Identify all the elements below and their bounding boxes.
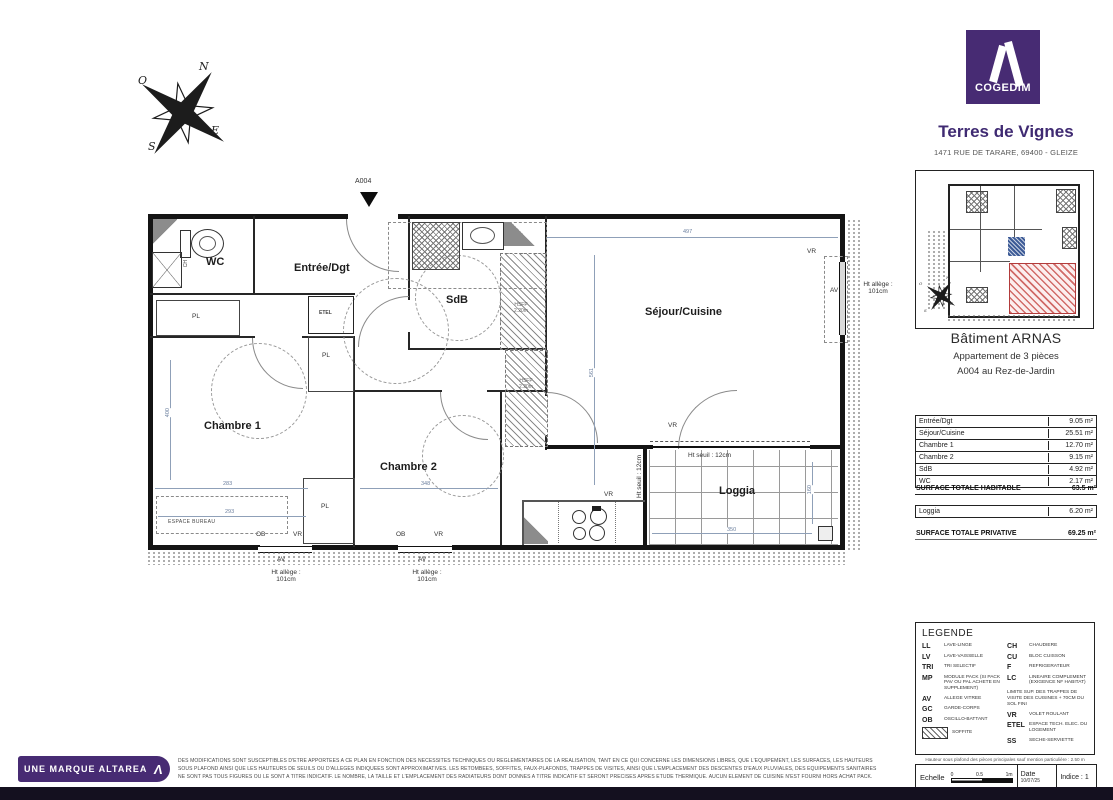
legend-desc: TRI SELECTIF	[944, 664, 976, 670]
wall-ch2-top-a	[355, 390, 442, 392]
dim-c1v: 400	[164, 408, 172, 417]
dim-loggia: 350	[726, 527, 737, 533]
loggia-floor	[649, 450, 838, 545]
win1-ht-1: Ht allège :	[271, 569, 300, 576]
room-chambre1: Chambre 1	[204, 420, 261, 432]
winR-vr: VR	[807, 248, 816, 255]
row-value: 9.15 m²	[1048, 453, 1093, 462]
room-entree: Entrée/Dgt	[294, 262, 350, 274]
row-value: 25.51 m²	[1048, 429, 1093, 438]
cogedim-logo: COGEDIM	[966, 30, 1040, 104]
win1-ht-allege: Ht allège : 101cm	[255, 569, 317, 583]
wall-wc-bottom	[150, 293, 355, 295]
room-sdb: SdB	[446, 294, 468, 306]
date-label: Date	[1021, 771, 1054, 778]
win2-ht-2: 101cm	[417, 576, 437, 583]
legend-item: VRVOLET ROULANT	[1007, 712, 1088, 719]
legend-item: SSSECHE-SERVIETTE	[1007, 738, 1088, 745]
row-label: Chambre 1	[919, 442, 954, 449]
key-highlight-apartment	[1009, 263, 1076, 314]
legend-item: FREFRIGERATEUR	[1007, 664, 1088, 671]
legend-desc: REFRIGERATEUR	[1029, 664, 1070, 670]
legend-item: AVALLEGE VITREE	[922, 696, 1001, 703]
scale-label: Echelle	[920, 773, 945, 782]
wall-kitchen-loggia	[643, 448, 647, 548]
row-label: SdB	[919, 466, 932, 473]
legend-right-column: CHCHAUDIERE CUBLOC CUISSON FREFRIGERATEU…	[1007, 643, 1088, 748]
program-address: 1471 RUE DE TARARE, 69400 - GLEIZE	[902, 148, 1110, 157]
legend-item: LCLINEAIRE COMPLEMENT (EXIGENCE NF HABIT…	[1007, 675, 1088, 687]
site-key-plan: N O E S	[915, 170, 1094, 329]
legend-box: LEGENDE LLLAVE-LINGE LVLAVE-VAISSELLE TR…	[915, 622, 1095, 755]
win1-ht-2: 101cm	[276, 576, 296, 583]
disclaimer-line-3: NE SONT PAS TOUS FIGURES OU LE SONT A TI…	[178, 774, 872, 780]
table-row: Loggia 6.20 m²	[916, 506, 1096, 517]
winR-ht-1: Ht allège :	[863, 281, 892, 288]
dimline-loggia	[652, 533, 812, 534]
legend-abbr: F	[1007, 664, 1025, 671]
boiler-icon	[152, 252, 182, 288]
legend-item: MPMODULE PACK (SI PACK PAV OU PAL ACHETE…	[922, 675, 1001, 693]
table-row: Chambre 29.15 m²	[916, 452, 1096, 464]
key-ground-bottom	[948, 315, 1076, 323]
hob-control-icon	[592, 506, 601, 511]
legend-item: TRITRI SELECTIF	[922, 664, 1001, 671]
indice-value: Indice : 1	[1060, 774, 1088, 781]
scale-seg-1	[951, 778, 983, 783]
soffite-hatch-2	[505, 350, 548, 447]
table-row: SdB4.92 m²	[916, 464, 1096, 476]
loggia-row-label: Loggia	[919, 508, 940, 515]
total-habitable-label: SURFACE TOTALE HABITABLE	[916, 485, 1021, 492]
key-hatch-1	[966, 191, 988, 213]
footer-bar	[0, 787, 1113, 800]
row-label: Séjour/Cuisine	[919, 430, 965, 437]
hsfp-2b: 2.20m	[519, 384, 533, 390]
wall-loggia-top-a	[545, 445, 653, 449]
loggia-drain	[818, 526, 833, 541]
legend-item: GCGARDE-CORPS	[922, 706, 1001, 713]
legend-desc: OSCILLO-BATTANT	[944, 717, 988, 723]
row-value: 12.70 m²	[1048, 441, 1093, 450]
indice-cell: Indice : 1	[1057, 765, 1096, 789]
table-row: Séjour/Cuisine25.51 m²	[916, 428, 1096, 440]
dim-sejv: 561	[588, 368, 596, 377]
legend-abbr: SS	[1007, 738, 1025, 745]
legend-item: CUBLOC CUISSON	[1007, 654, 1088, 661]
compass-e: E	[211, 124, 219, 137]
legend-abbr: VR	[1007, 712, 1025, 719]
corner-fill	[153, 219, 177, 245]
legend-left-column: LLLAVE-LINGE LVLAVE-VAISSELLE TRITRI SEL…	[922, 643, 1001, 748]
altarea-badge: UNE MARQUE ALTAREA Λ	[18, 756, 170, 782]
key-hatch-2	[1056, 189, 1076, 213]
row-label: Entrée/Dgt	[919, 418, 952, 425]
dimline-c2	[360, 488, 498, 489]
toilet-bowl-inner	[199, 236, 216, 251]
closet-pl-3-label: PL	[321, 503, 329, 510]
scale-seg-2	[982, 778, 1013, 783]
legend-desc: SECHE-SERVIETTE	[1029, 738, 1074, 744]
dim-c1b: 293	[224, 509, 235, 515]
legend-item: LLLAVE-LINGE	[922, 643, 1001, 650]
key-hatch-3	[1062, 227, 1077, 249]
legend-abbr: MP	[922, 675, 940, 682]
legend-item-soffite: SOFFITE	[922, 727, 1001, 739]
compass-s: S	[148, 140, 156, 153]
loggia-vr: VR	[668, 422, 677, 429]
legend-abbr: TRI	[922, 664, 940, 671]
legend-desc: MODULE PACK (SI PACK PAV OU PAL ACHETE E…	[944, 675, 1001, 693]
legend-desc: LAVE-VAISSELLE	[944, 654, 983, 660]
dimline-c1	[155, 488, 308, 489]
dimline-c1b	[158, 516, 306, 517]
hob-zone	[558, 502, 616, 543]
ht-seuil-h: Ht seuil : 12cm	[688, 452, 731, 459]
surface-table: Entrée/Dgt9.05 m² Séjour/Cuisine25.51 m²…	[915, 415, 1097, 488]
date-cell: Date 10/07/25	[1018, 765, 1058, 789]
dim-c1: 283	[222, 481, 233, 487]
espace-bureau-label: ESPACE BUREAU	[168, 519, 215, 525]
compass-n: N	[199, 60, 209, 73]
ground-texture-right	[848, 220, 861, 550]
building-name: Bâtiment ARNAS	[902, 330, 1110, 346]
legend-desc: SOFFITE	[952, 730, 972, 736]
total-private-value: 69.25 m²	[1068, 530, 1096, 537]
sdb-corner-fill	[504, 222, 542, 246]
total-private-row: SURFACE TOTALE PRIVATIVE 69.25 m²	[915, 528, 1097, 540]
washbasin-bowl	[470, 227, 495, 244]
legend-abbr: AV	[922, 696, 940, 703]
key-compass-n: N	[946, 275, 950, 280]
entrance-arrow-icon	[360, 192, 378, 207]
legend-item: LVLAVE-VAISSELLE	[922, 654, 1001, 661]
ceiling-height-note: Hauteur sous plafond des pièces principa…	[912, 757, 1098, 762]
legend-abbr: ETEL	[1007, 722, 1025, 729]
legend-title: LEGENDE	[922, 628, 1088, 639]
counter-corner-fill	[524, 514, 548, 544]
total-habitable-value: 63.5 m²	[1072, 485, 1096, 492]
row-value: 9.05 m²	[1048, 417, 1093, 426]
hsfp-label-2: HSFP 2.20m	[506, 378, 546, 390]
win2-ob: OB	[396, 531, 405, 538]
win2-vr: VR	[434, 531, 443, 538]
key-compass-e: E	[950, 301, 953, 306]
key-core-stairs	[1008, 237, 1025, 256]
table-row: Entrée/Dgt9.05 m²	[916, 416, 1096, 428]
key-compass-s: S	[924, 308, 927, 313]
key-compass-o: O	[919, 281, 922, 286]
legend-abbr: LV	[922, 654, 940, 661]
dim-logv: 160	[806, 485, 814, 494]
legend-desc: CHAUDIERE	[1029, 643, 1057, 649]
legend-desc: LINEAIRE COMPLEMENT (EXIGENCE NF HABITAT…	[1029, 675, 1088, 687]
espace-bureau-zone	[156, 496, 288, 534]
burner-icon-3	[573, 527, 586, 540]
table-row: Chambre 112.70 m²	[916, 440, 1096, 452]
loggia-row-value: 6.20 m²	[1048, 507, 1093, 516]
closet-pl-2	[308, 336, 354, 392]
window-sejour-vr-box	[824, 256, 848, 343]
legend-desc: BLOC CUISSON	[1029, 654, 1065, 660]
closet-pl-1-label: PL	[192, 313, 200, 320]
key-partition-3	[950, 229, 1042, 230]
room-sejour: Séjour/Cuisine	[645, 306, 722, 318]
closet-pl-3	[303, 478, 355, 544]
disclaimer-line-1: DES MODIFICATIONS SONT SUSCEPTIBLES D'ET…	[178, 758, 873, 764]
legend-desc: VOLET ROULANT	[1029, 712, 1069, 718]
wall-right-1	[840, 214, 845, 262]
entrance-tag: A004	[355, 178, 371, 185]
closet-etel-label: ETEL	[319, 310, 332, 316]
ground-texture-bottom	[148, 552, 845, 565]
legend-desc: ALLEGE VITREE	[944, 696, 981, 702]
win2-ht-allege: Ht allège : 101cm	[396, 569, 458, 583]
total-private-label: SURFACE TOTALE PRIVATIVE	[916, 530, 1017, 537]
scale-bar: 0 0.5 1m	[951, 772, 1013, 783]
key-compass-icon	[922, 277, 960, 315]
loggia-bay-window	[650, 441, 810, 448]
wall-loggia-top-b	[810, 445, 843, 449]
room-loggia: Loggia	[719, 485, 755, 497]
legend-abbr: OB	[922, 717, 940, 724]
legend-item: ETELESPACE TECH. ELEC. DU LOGEMENT	[1007, 722, 1088, 734]
closet-pl-2-label: PL	[322, 352, 330, 359]
wall-bottom-4	[522, 545, 845, 550]
cogedim-wordmark: COGEDIM	[966, 82, 1040, 94]
wall-wc-right	[253, 216, 255, 295]
row-value: 4.92 m²	[1048, 465, 1093, 474]
room-wc: WC	[206, 256, 224, 268]
hsfp-1b: 2.20m	[514, 308, 528, 314]
program-title: Terres de Vignes	[902, 122, 1110, 142]
legend-abbr: CH	[1007, 643, 1025, 650]
legend-abbr: GC	[922, 706, 940, 713]
dimline-c1v	[170, 360, 171, 480]
win2-ht-1: Ht allège :	[412, 569, 441, 576]
door-arc-entrance	[346, 219, 399, 272]
door-arc-sejour	[547, 392, 598, 443]
altarea-lambda-icon: Λ	[153, 762, 165, 777]
legend-item: CHCHAUDIERE	[1007, 643, 1088, 650]
compass-o: O	[138, 74, 147, 87]
legend-abbr: LC	[1007, 675, 1025, 682]
burner-icon-4	[589, 525, 605, 541]
soffite-swatch-icon	[922, 727, 948, 739]
wall-bottom-1	[148, 545, 260, 550]
total-habitable-row: SURFACE TOTALE HABITABLE 63.5 m²	[915, 483, 1097, 495]
loggia-table: Loggia 6.20 m²	[915, 505, 1097, 518]
wall-top-right	[398, 214, 845, 219]
winR-av: AV	[830, 287, 838, 294]
disclaimer-line-2: SOUS PLAFOND AINSI QUE LES HAUTEURS DE S…	[178, 766, 876, 772]
scale-cell: Echelle 0 0.5 1m	[916, 765, 1018, 789]
date-value: 10/07/25	[1021, 778, 1054, 784]
legend-note: LIMITE SUP. DES TRAPPES DE VISITE DES CU…	[1007, 690, 1088, 708]
apartment-type: Appartement de 3 pièces	[902, 351, 1110, 362]
ht-seuil-v: Ht seuil : 12cm	[636, 455, 643, 498]
dim-c2: 348	[420, 481, 431, 487]
win1-vr: VR	[293, 531, 302, 538]
altarea-badge-label: UNE MARQUE ALTAREA	[24, 764, 147, 774]
wall-bottom-2	[312, 545, 398, 550]
dim-top: 497	[682, 229, 693, 235]
wall-right-2	[840, 335, 845, 550]
legend-item: OBOSCILLO-BATTANT	[922, 717, 1001, 724]
wall-bottom-3	[452, 545, 522, 550]
wall-top-left	[148, 214, 348, 219]
winR-ht-2: 101cm	[868, 288, 888, 295]
kitchen-vr: VR	[604, 491, 613, 498]
boiler-label: CH	[183, 260, 189, 267]
legend-desc: GARDE-CORPS	[944, 706, 980, 712]
burner-icon-1	[572, 510, 586, 524]
shower-icon	[412, 222, 460, 270]
key-partition-4	[950, 261, 1010, 262]
legend-abbr: LL	[922, 643, 940, 650]
legend-abbr: CU	[1007, 654, 1025, 661]
floorplan-sheet: N O E S A004 CH PL ET	[0, 0, 1113, 800]
key-hatch-4	[966, 287, 988, 303]
wall-ch1-top-a	[150, 336, 255, 338]
legend-desc: LAVE-LINGE	[944, 643, 972, 649]
hsfp-label-1: HSFP 2.20m	[501, 302, 541, 314]
row-label: Chambre 2	[919, 454, 954, 461]
dimline-top	[547, 237, 838, 238]
room-chambre2: Chambre 2	[380, 461, 437, 473]
legend-desc: ESPACE TECH. ELEC. DU LOGEMENT	[1029, 722, 1088, 734]
apartment-location: A004 au Rez-de-Jardin	[902, 366, 1110, 377]
